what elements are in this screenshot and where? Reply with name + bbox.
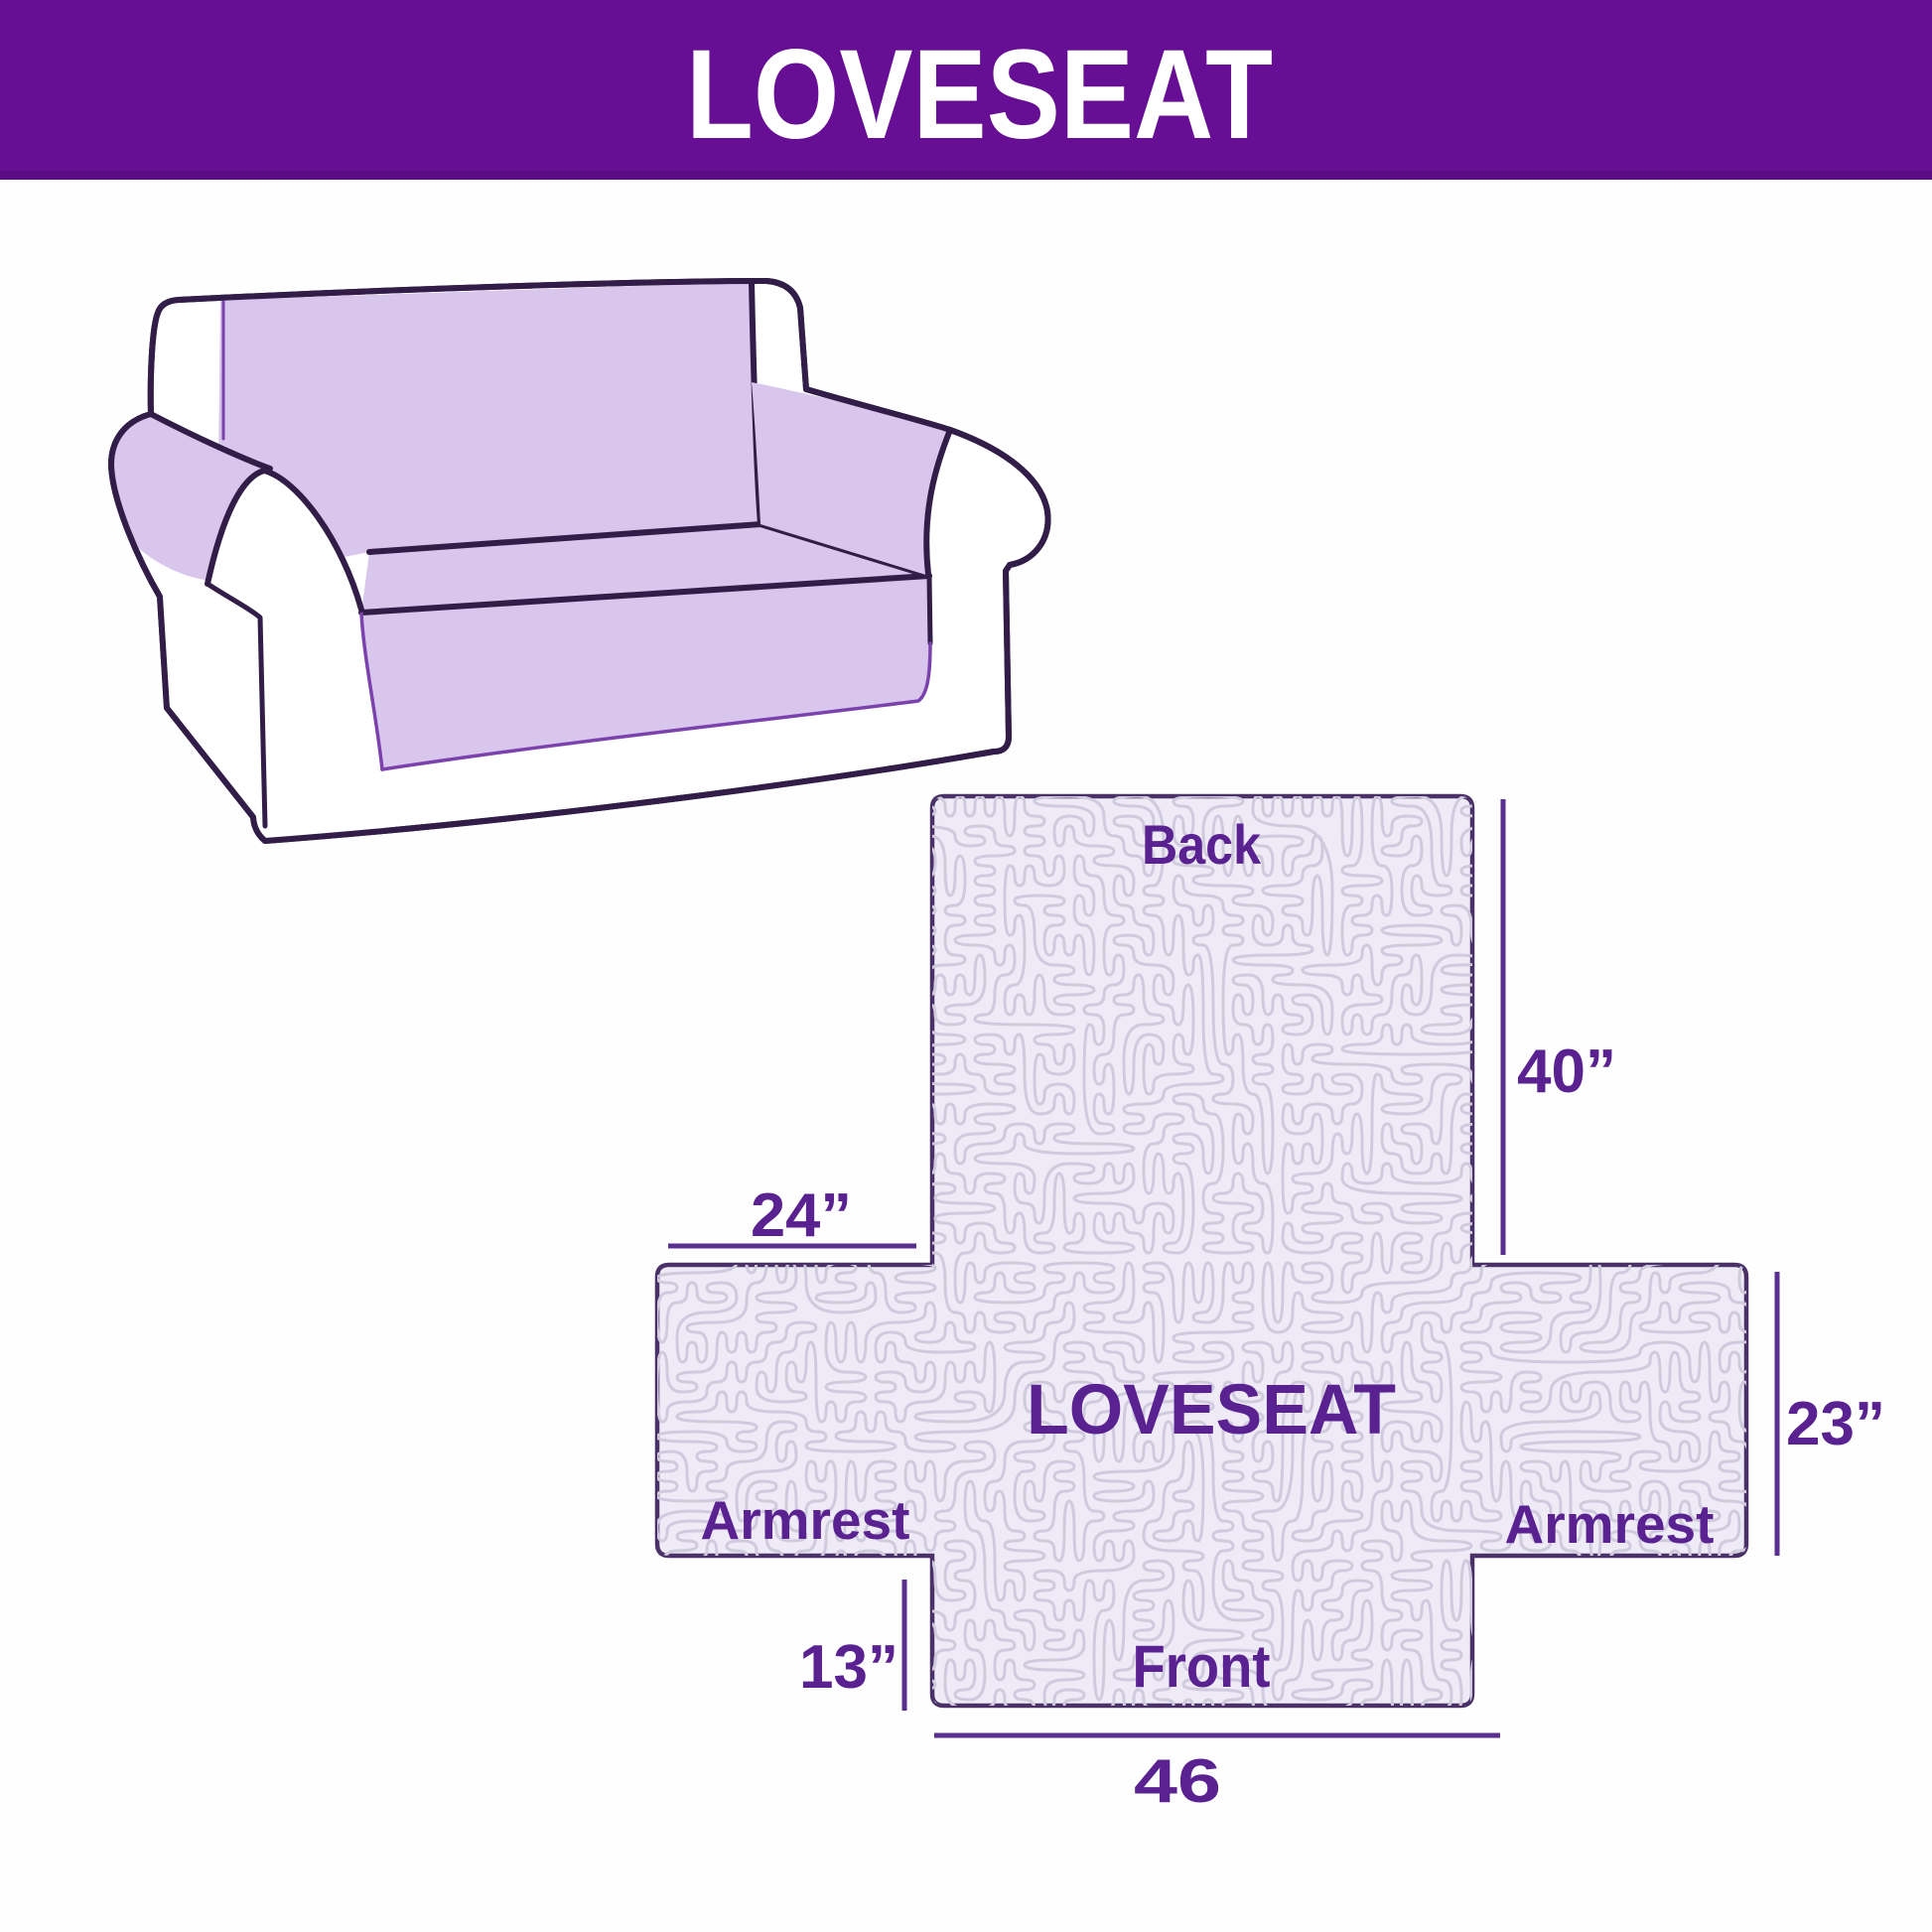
svg-text:24”: 24”	[751, 1181, 852, 1250]
svg-text:Armrest: Armrest	[1505, 1493, 1715, 1555]
svg-text:46: 46	[1134, 1747, 1221, 1816]
svg-text:40”: 40”	[1517, 1037, 1616, 1106]
svg-text:Back: Back	[1142, 813, 1262, 876]
svg-text:Armrest: Armrest	[701, 1489, 910, 1551]
svg-text:Front: Front	[1133, 1633, 1271, 1700]
svg-text:LOVESEAT: LOVESEAT	[686, 24, 1273, 166]
svg-text:13”: 13”	[799, 1633, 898, 1702]
svg-text:LOVESEAT: LOVESEAT	[1027, 1371, 1396, 1449]
svg-text:23”: 23”	[1786, 1390, 1885, 1458]
